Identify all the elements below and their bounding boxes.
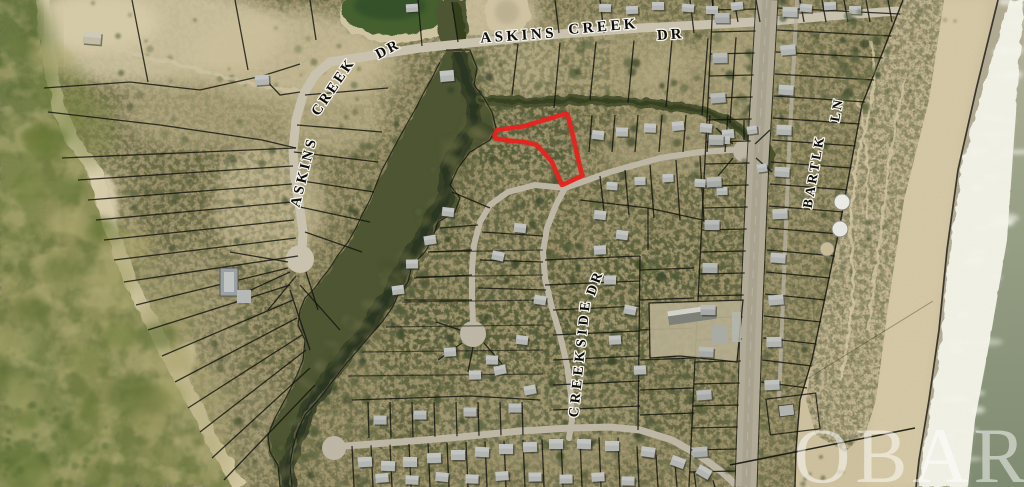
svg-text:DR: DR bbox=[656, 26, 685, 44]
svg-text:OBAR: OBAR bbox=[794, 412, 1024, 487]
